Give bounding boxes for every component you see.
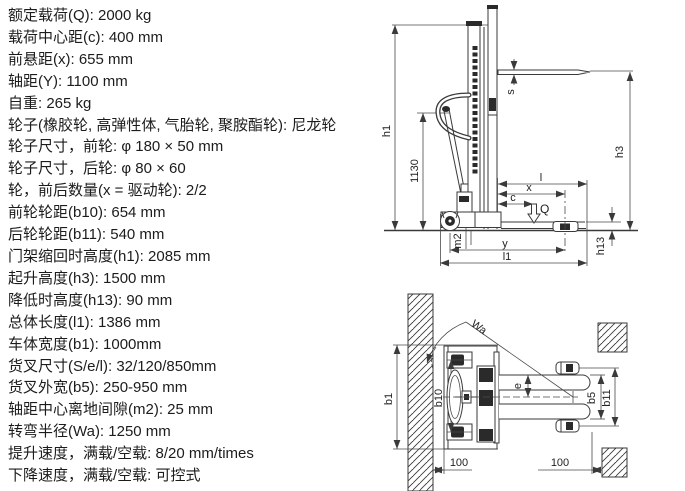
label-clearance-left: 100 bbox=[450, 457, 468, 469]
load-arrow: Q bbox=[528, 202, 549, 223]
fork-carriage bbox=[487, 5, 498, 229]
dim-h3: h3 bbox=[614, 72, 630, 230]
label-q: Q bbox=[540, 202, 549, 216]
corner-block-bottom bbox=[602, 448, 627, 477]
label-b10: b10 bbox=[433, 389, 445, 407]
fork-blade bbox=[498, 70, 590, 75]
label-e: e bbox=[512, 383, 524, 389]
carriage-plan bbox=[477, 366, 495, 442]
label-s: s bbox=[505, 89, 517, 95]
label-wa: Wa bbox=[469, 318, 490, 338]
pump-cylinder bbox=[457, 184, 472, 216]
label-b5: b5 bbox=[586, 392, 598, 404]
rear-wheel bbox=[441, 212, 460, 231]
corner-block-top bbox=[598, 323, 627, 352]
label-l1: l1 bbox=[503, 251, 512, 263]
fork-bottom-plan bbox=[499, 404, 590, 419]
label-l: l bbox=[540, 172, 542, 184]
dim-clearance-right: 100 bbox=[538, 432, 602, 474]
label-h1: h1 bbox=[381, 125, 393, 137]
stacker-spec-sheet: 额定载荷(Q): 2000 kg 载荷中心距(c): 400 mm 前悬距(x)… bbox=[0, 0, 685, 491]
front-wheel-bottom-plan bbox=[556, 420, 579, 432]
dim-y: y bbox=[450, 233, 565, 253]
label-m2: m2 bbox=[452, 233, 464, 248]
label-y: y bbox=[502, 238, 508, 250]
side-view-drawing: h1 1130 bbox=[381, 5, 638, 266]
dim-clearance-left: 100 bbox=[433, 449, 472, 474]
label-c: c bbox=[510, 192, 516, 204]
label-h3: h3 bbox=[614, 146, 626, 158]
label-b11: b11 bbox=[601, 389, 613, 407]
dim-s: s bbox=[505, 59, 517, 95]
label-b1: b1 bbox=[383, 393, 395, 405]
label-clearance-right: 100 bbox=[551, 457, 569, 469]
technical-drawing: h1 1130 bbox=[0, 0, 685, 491]
top-view-drawing: b1 b10 bbox=[383, 294, 627, 491]
aisle-wall bbox=[408, 294, 433, 491]
label-h13: h13 bbox=[595, 237, 607, 255]
front-wheel-top-plan bbox=[556, 362, 579, 374]
label-1130: 1130 bbox=[409, 159, 421, 183]
front-wheel bbox=[553, 222, 578, 232]
label-x: x bbox=[526, 182, 532, 194]
tiller-handle bbox=[438, 95, 469, 194]
